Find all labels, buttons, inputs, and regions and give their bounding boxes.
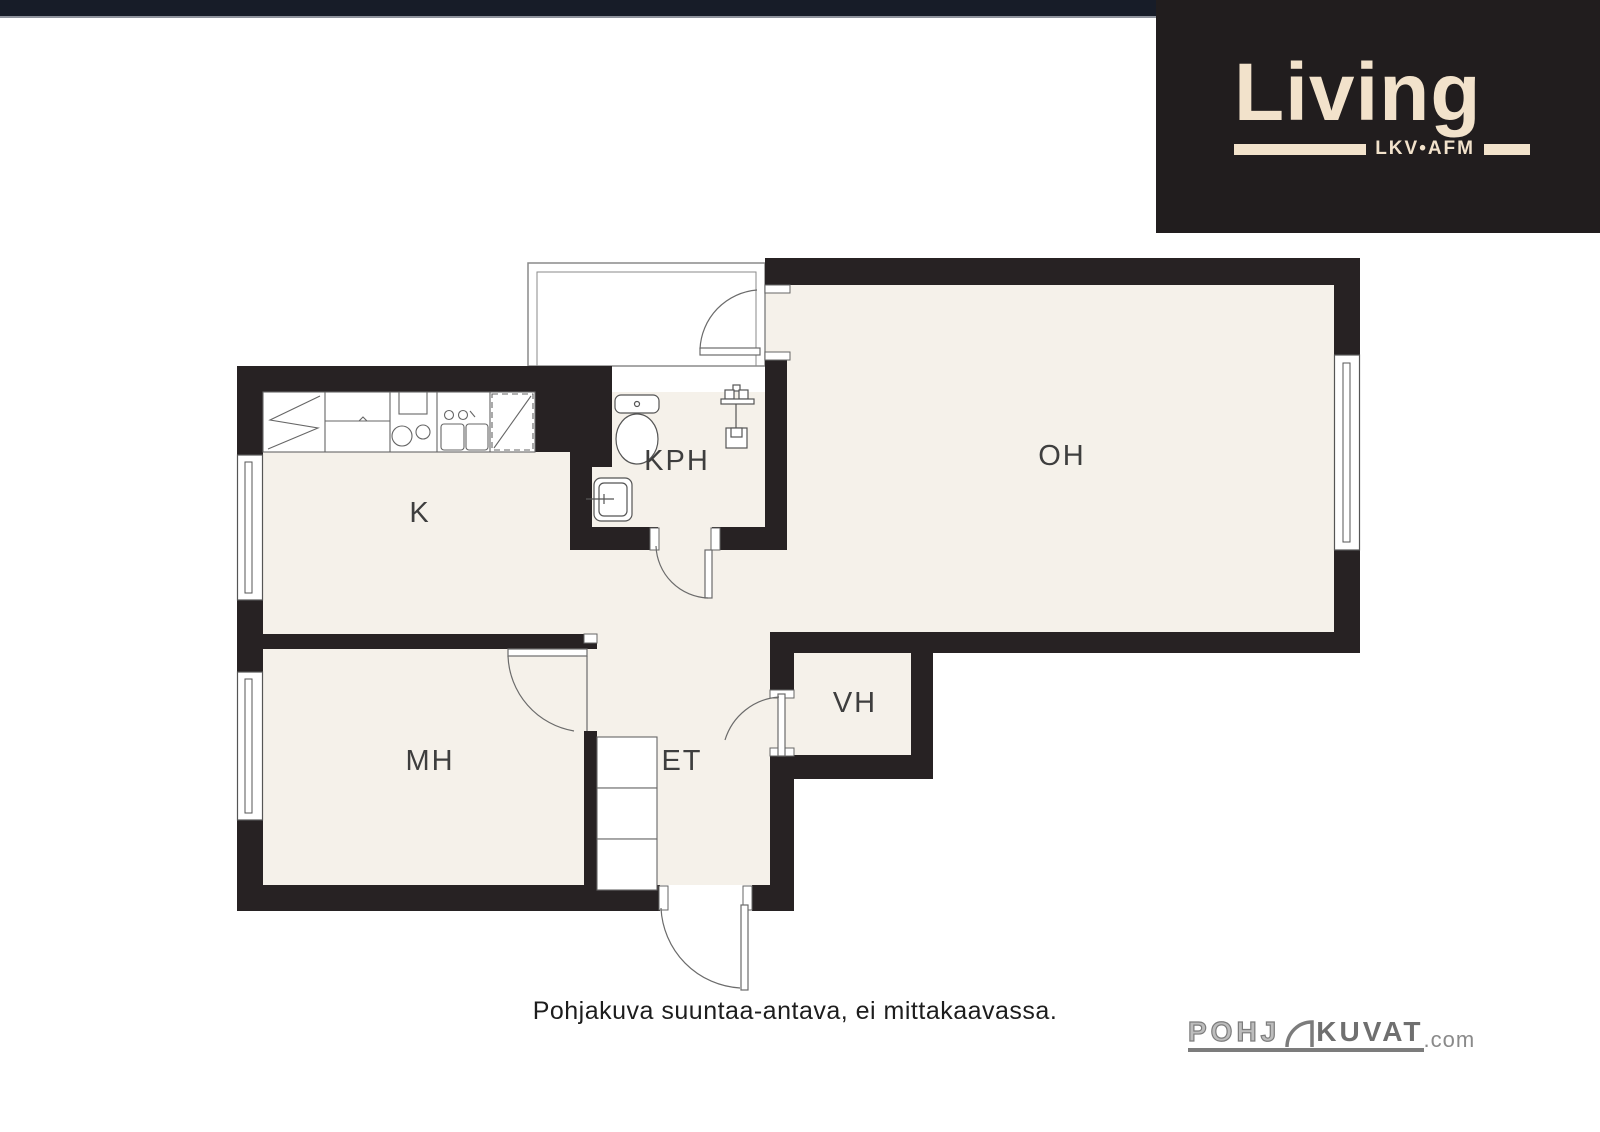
- kitchen-window-icon: [238, 455, 263, 600]
- pohjakuvat-prefix: POHJ: [1188, 1018, 1280, 1046]
- room-label-mh: MH: [405, 745, 454, 777]
- room-label-kph: KPH: [644, 445, 710, 477]
- main-entrance-door-icon: [661, 905, 748, 990]
- bedroom-window-icon: [238, 672, 263, 820]
- door-swing-icon: [1284, 1016, 1314, 1048]
- room-label-oh: OH: [1038, 440, 1086, 472]
- pohjakuvat-underline-group: POHJ KUVAT: [1188, 1016, 1424, 1052]
- pohjakuvat-logo: POHJ KUVAT .com: [1188, 1016, 1475, 1052]
- dishwasher-icon: [492, 394, 533, 450]
- room-label-k: K: [409, 497, 430, 529]
- wardrobe-icons: [597, 737, 657, 890]
- room-label-et: ET: [661, 745, 702, 777]
- kitchen-counter: [263, 392, 535, 452]
- floor-areas: [263, 258, 1360, 885]
- pohjakuvat-main: KUVAT: [1316, 1018, 1423, 1046]
- room-label-vh: VH: [833, 687, 877, 719]
- pohjakuvat-suffix: .com: [1424, 1029, 1476, 1052]
- livingroom-window-icon: [1335, 355, 1360, 550]
- floor-plan: OH K KPH MH ET VH: [0, 0, 1600, 1132]
- disclaimer-text: Pohjakuva suuntaa-antava, ei mittakaavas…: [295, 997, 1295, 1026]
